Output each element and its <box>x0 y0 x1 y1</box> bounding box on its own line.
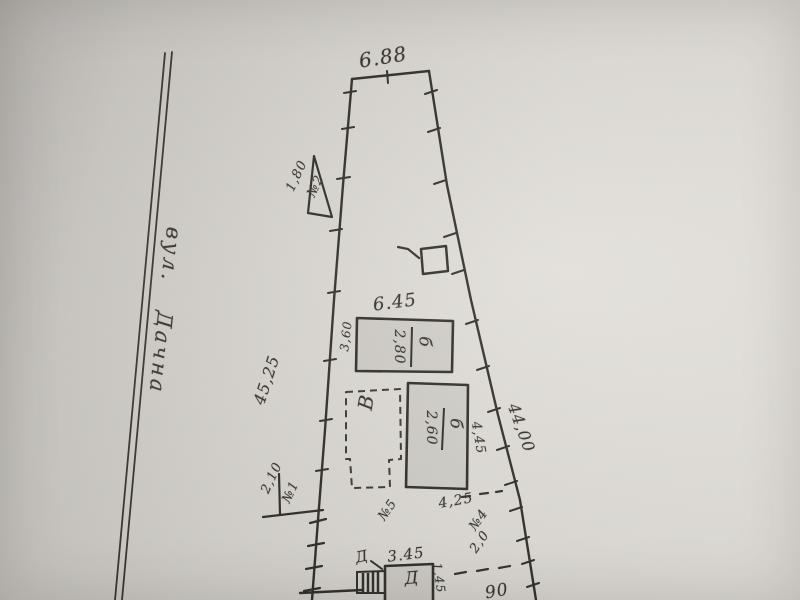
well-square <box>421 246 448 274</box>
street-prefix: вул. <box>157 226 184 284</box>
pointer-arrow <box>398 247 419 258</box>
building-b1-height: 2,80 <box>392 329 406 364</box>
building-b2-height: 2,60 <box>424 410 438 445</box>
scanned-site-plan: вул. Дачна 6.88 45,25 44,00 №2 1,80 №1 2… <box>0 0 800 600</box>
building-b1-fraction-bar <box>411 327 412 367</box>
cut-off-text: 90 <box>484 582 510 600</box>
building-v-letter: В <box>355 393 377 412</box>
building-b1-depth-dimension: 3,60 <box>338 320 354 352</box>
callout-dash <box>371 561 382 569</box>
building-d-width-dimension: 3.45 <box>387 545 426 564</box>
building-b2-letter: б <box>447 418 464 429</box>
building-b1-letter: б <box>416 336 433 347</box>
building-d-callout: Д <box>354 548 370 565</box>
building-d-letter: Д <box>404 570 420 588</box>
